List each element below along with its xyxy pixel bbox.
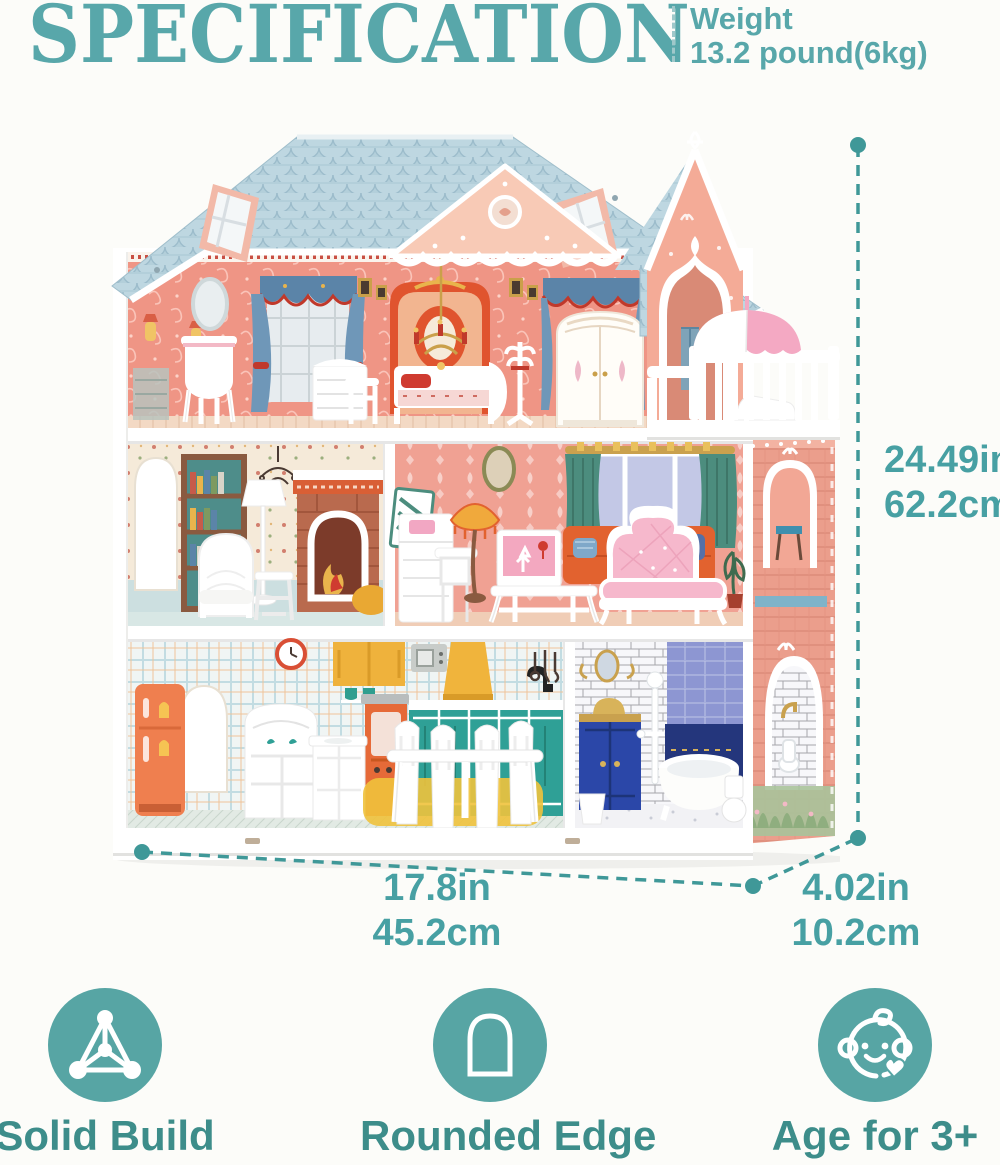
side-bush-band xyxy=(743,786,835,836)
bath-mirror xyxy=(596,651,618,681)
kitchen-arch-opening xyxy=(181,686,227,792)
feature-label: Age for 3+ xyxy=(745,1112,1000,1160)
kitchen-room xyxy=(128,640,563,828)
weight-block: Weight 13.2 pound(6kg) xyxy=(690,2,928,70)
kitchen-sink-unit xyxy=(309,736,367,820)
width-centimeters: 45.2cm xyxy=(287,911,587,956)
weight-label: Weight xyxy=(690,2,928,36)
molecule-triangle-icon xyxy=(48,988,162,1102)
wicker-armchair xyxy=(199,534,253,618)
bathroom xyxy=(575,642,746,828)
feature-icon-circle xyxy=(818,988,932,1102)
width-dimension-label: 17.8in 45.2cm xyxy=(287,866,587,956)
product-spec-page: { "page": { "background_color": "#fcfcf9… xyxy=(0,0,1000,1165)
bath-vanity xyxy=(579,698,641,810)
width-inches: 17.8in xyxy=(287,866,587,911)
dollhouse-photo xyxy=(95,128,840,870)
feature-icon-circle xyxy=(433,988,547,1102)
fridge-print xyxy=(135,684,185,816)
rounded-arch-icon xyxy=(433,988,547,1102)
bedroom-floor xyxy=(128,252,655,428)
feature-solid-build: Solid Build xyxy=(0,976,235,1160)
depth-dimension-label: 4.02in 10.2cm xyxy=(756,866,956,956)
living-room xyxy=(390,442,744,626)
wardrobe xyxy=(557,312,643,426)
house-side-wall xyxy=(743,428,835,844)
height-centimeters: 62.2cm xyxy=(884,483,1000,528)
weight-value: 13.2 pound(6kg) xyxy=(690,36,928,70)
page-title: SPECIFICATION xyxy=(28,0,690,76)
feature-badges: Solid Build Rounded Edge xyxy=(0,976,1000,1165)
feature-label: Rounded Edge xyxy=(360,1112,620,1160)
depth-inches: 4.02in xyxy=(756,866,956,911)
library-room xyxy=(128,444,390,626)
depth-centimeters: 10.2cm xyxy=(756,911,956,956)
range-hood xyxy=(443,642,493,698)
feature-rounded-edge: Rounded Edge xyxy=(360,976,620,1160)
bed xyxy=(390,276,507,424)
feature-icon-circle xyxy=(48,988,162,1102)
bucket xyxy=(579,794,605,824)
feature-age: Age for 3+ xyxy=(745,976,1000,1160)
oval-mirror xyxy=(484,448,514,490)
height-inches: 24.49in xyxy=(884,438,1000,483)
feature-label: Solid Build xyxy=(0,1112,235,1160)
house-base xyxy=(113,828,753,856)
kitchen-hutch xyxy=(245,704,317,818)
height-dimension-label: 24.49in 62.2cm xyxy=(884,438,1000,528)
library-arch-opening xyxy=(135,458,177,590)
header-divider xyxy=(672,6,675,62)
baby-face-icon xyxy=(818,988,932,1102)
wall-clock xyxy=(277,640,305,668)
